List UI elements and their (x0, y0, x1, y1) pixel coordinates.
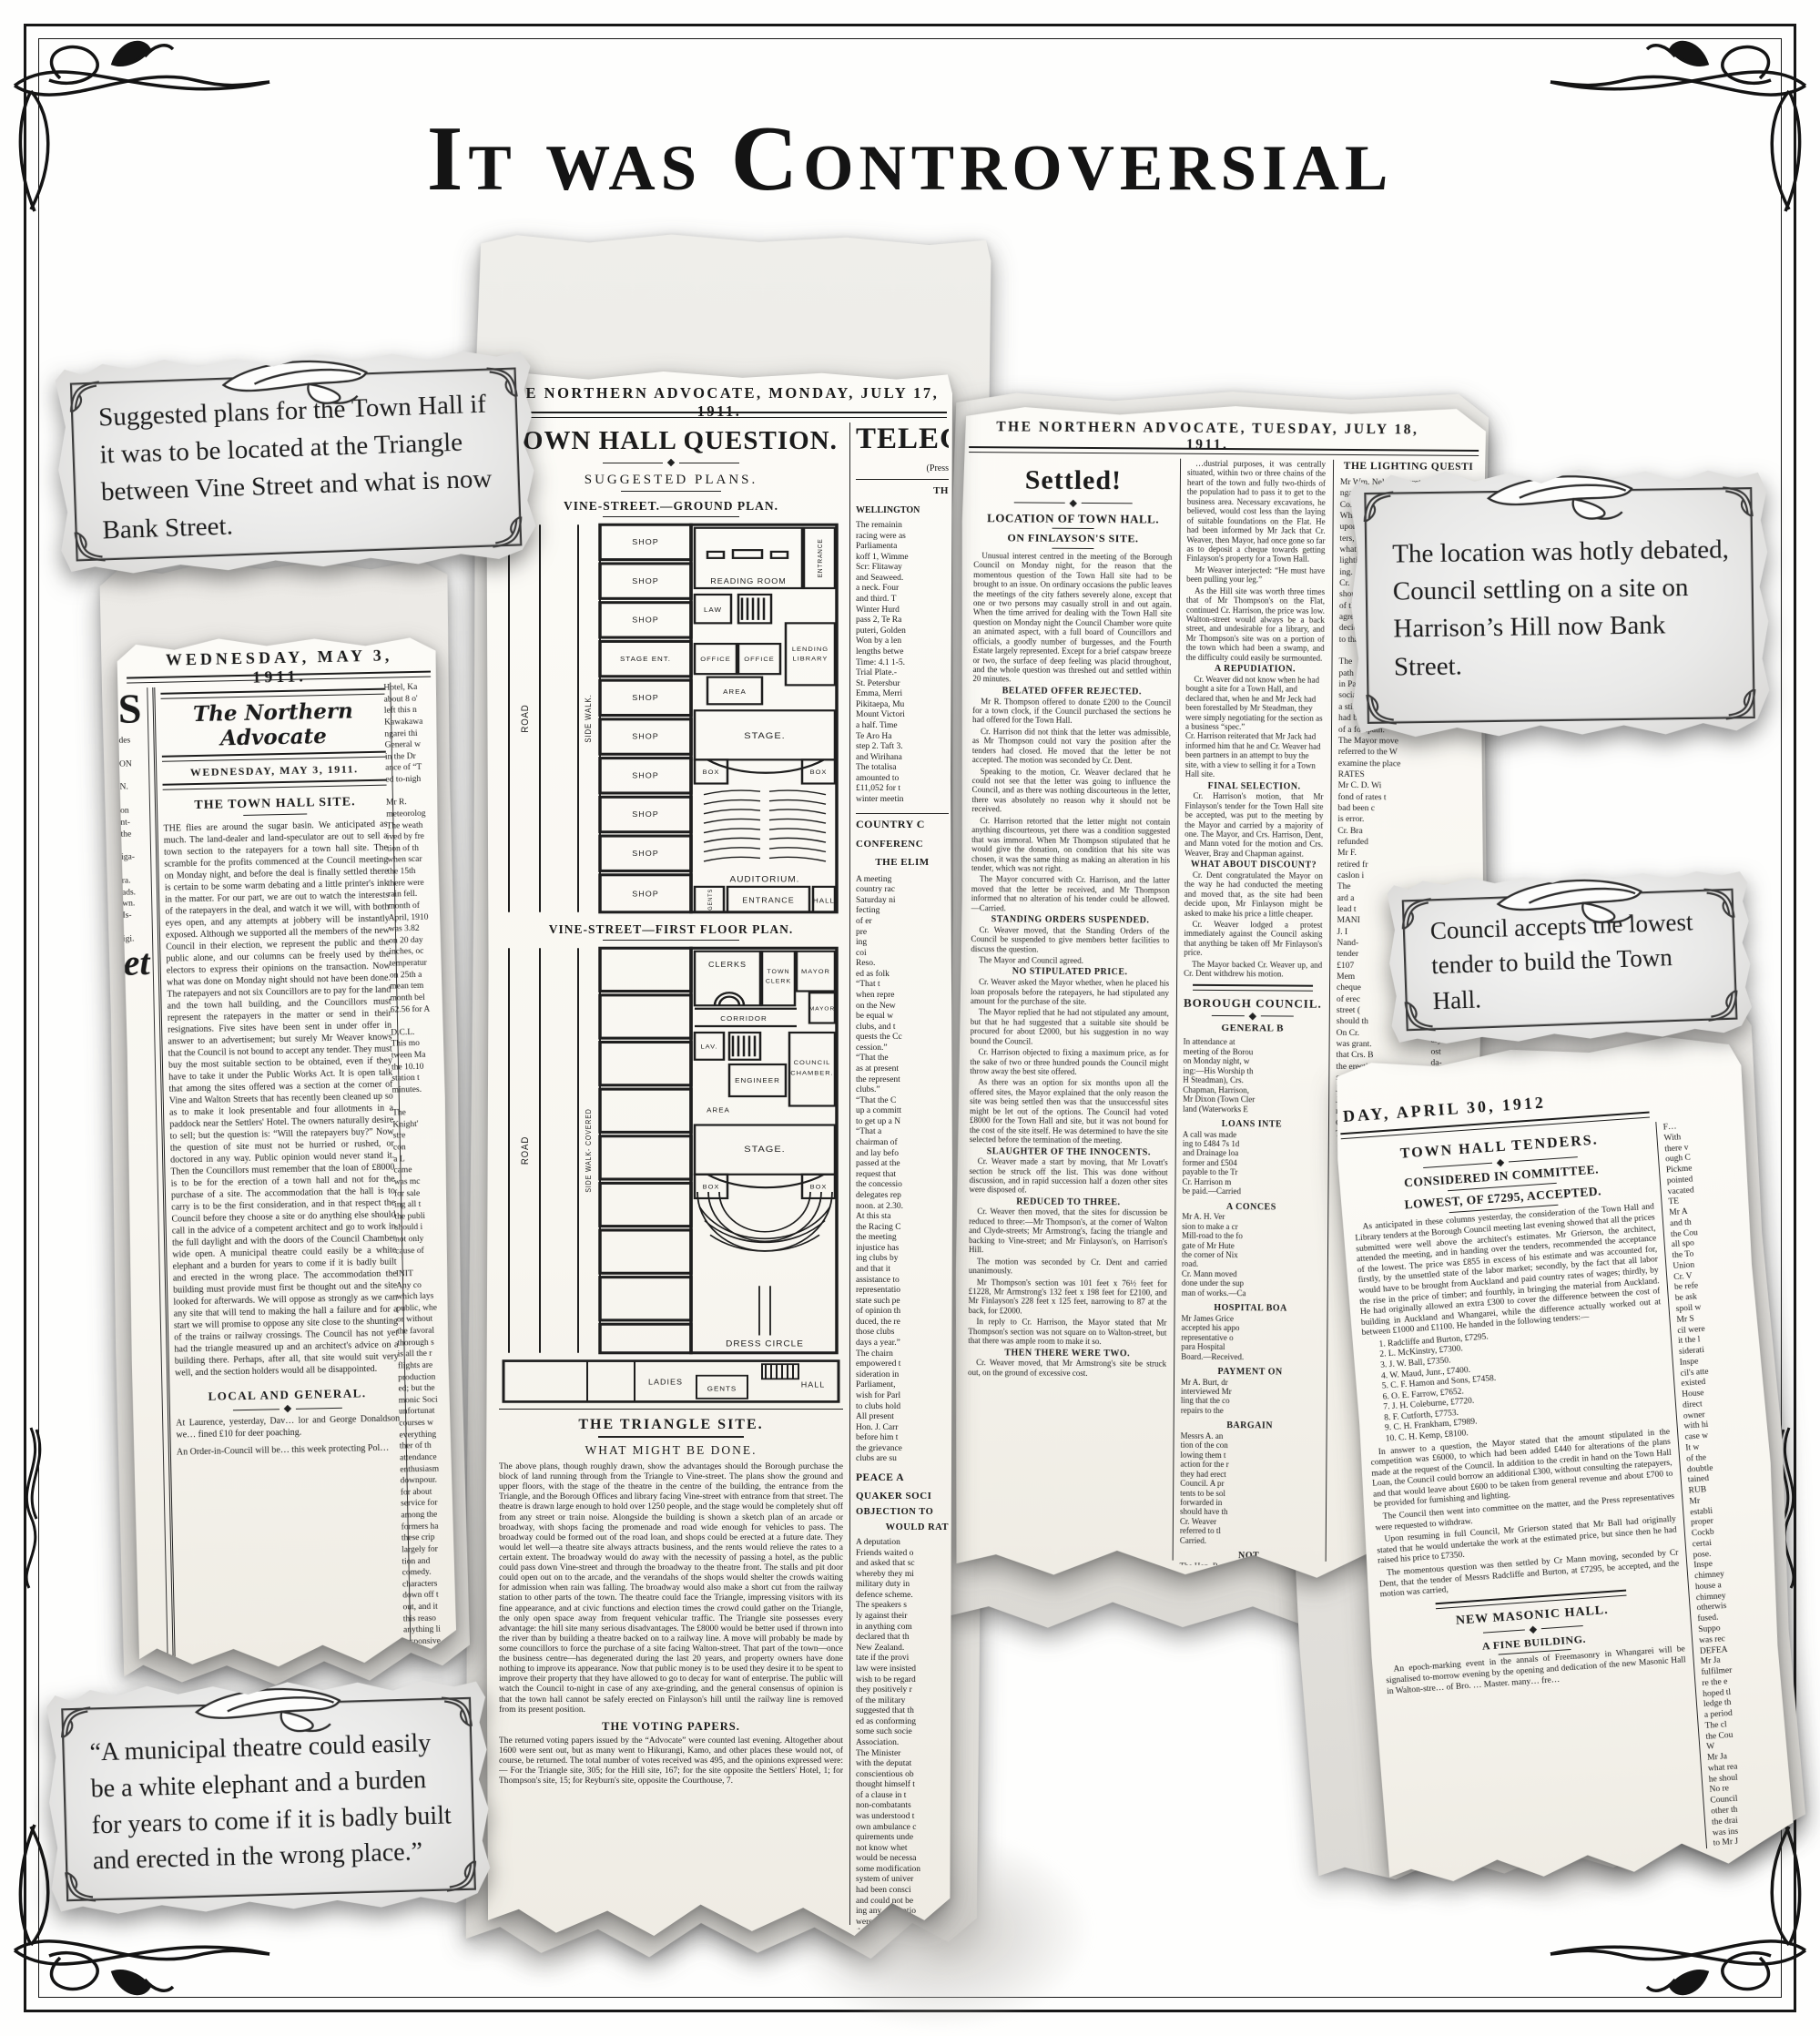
paragraph: Cr. Weaver moved, that the Standing Orde… (971, 925, 1169, 955)
section-heading: LOANS INTE (1183, 1119, 1321, 1131)
fragment: Mr James Grice accepted his appo represe… (1181, 1313, 1319, 1361)
news-item: An Order-in-Council will be… this week p… (177, 1441, 401, 1458)
article-subhead: ON FINLAYSON'S SITE. (973, 532, 1172, 545)
paragraph: Cr. Harrison did not think that the lett… (972, 727, 1171, 766)
paragraph: The Mayor replied that he had not stipul… (971, 1007, 1169, 1046)
paragraph: Cr. Harrison objected to fixing a maximu… (970, 1047, 1168, 1077)
room-label: CLERK (766, 979, 791, 985)
room-label: SHOP (632, 849, 658, 857)
column-heading: WOULD RAT (856, 1522, 949, 1532)
sidewalk-label: SIDE WALK. (583, 694, 593, 742)
column-heading: CONFERENC (856, 839, 949, 850)
section-heading: HOSPITAL BOA (1182, 1303, 1320, 1315)
cut-letter: et (123, 944, 153, 982)
paragraph: Cr. Weaver did not know when he had boug… (1185, 675, 1325, 780)
room-label: MAYOR (809, 1006, 835, 1013)
room-label: COUNCIL (794, 1060, 831, 1066)
room-label: LADIES (648, 1378, 683, 1386)
room-label: CHAMBER. (790, 1071, 834, 1077)
paragraph: Mr Thompson's section was 101 feet x 76½… (969, 1278, 1167, 1317)
room-label: HALL (813, 897, 835, 904)
room-label: LENDING (792, 646, 829, 653)
corner-curl-icon (1719, 484, 1756, 521)
diamond-ornament (1530, 1625, 1537, 1633)
road-label: ROAD (520, 704, 531, 732)
section-heading: BELATED OFFER REJECTED. (972, 686, 1171, 697)
article-body: THE flies are around the sugar basin. We… (163, 819, 399, 1379)
news-item: At Laurence, yesterday, Dav… lor and Geo… (176, 1412, 400, 1440)
room-label: GENTS (707, 889, 714, 911)
caption-box-location-debated: The location was hotly debated, Council … (1349, 467, 1770, 738)
paragraph: …dustrial purposes, it was centrally sit… (1186, 459, 1326, 565)
article-headline: THE TOWN HALL SITE. (163, 795, 387, 814)
room-label: AREA (723, 687, 747, 695)
room-label: LIBRARY (793, 657, 829, 663)
paragraph: Unusual interest centred in the meeting … (972, 551, 1172, 686)
paragraph: Cr. Weaver made a start by moving, that … (969, 1156, 1167, 1196)
caption-text: The location was hotly debated, Council … (1392, 532, 1733, 687)
press-credit: (Press (856, 463, 949, 473)
article-headline: Settled! (974, 464, 1173, 497)
paragraph: Cr. Harrison retorted that the letter mi… (971, 816, 1170, 874)
paragraph: In reply to Cr. Harrison, the Mayor stat… (968, 1317, 1166, 1347)
article-headline: TOWN HALL QUESTION. (499, 426, 843, 456)
column-heading: THE ELIM (856, 857, 949, 868)
swirl-ornament-icon (215, 351, 371, 409)
corner-curl-icon (1360, 488, 1398, 525)
sidewalk-label: SIDE WALK- COVERED (585, 1108, 594, 1192)
room-label: AUDITORIUM. (730, 875, 800, 883)
swirl-ornament-icon (188, 1679, 344, 1736)
caption-text: Suggested plans for the Town Hall if it … (97, 386, 499, 550)
section-heading: THE TRIANGLE SITE. (499, 1417, 843, 1433)
frontage-plan: LADIES GENTS HALL (500, 1358, 842, 1405)
diamond-ornament (1497, 1158, 1504, 1166)
paragraph: Speaking to the motion, Cr. Weaver decla… (971, 767, 1170, 816)
section-heading: LOCAL AND GENERAL. (175, 1385, 399, 1404)
section-heading: BOROUGH COUNCIL. (1184, 995, 1322, 1010)
room-label: SHOP (632, 890, 658, 898)
clipping-april-30-1912: DAY, APRIL 30, 1912 TOWN HALL TENDERS. C… (1330, 1032, 1799, 1888)
fragment: A call was made ing to £484 7s 1d and Dr… (1182, 1129, 1321, 1196)
first-floor-plan: ROAD SIDE WALK- COVERED (500, 943, 842, 1358)
tender-list: 1. Radcliffe and Burton, £7295. 2. L. Mc… (1362, 1320, 1669, 1447)
room-label: OFFICE (700, 657, 730, 664)
room-label: BOX (810, 769, 828, 776)
room-label: SHOP (632, 771, 658, 779)
deputation-fragment: A deputation Friends waited o and asked … (856, 1538, 949, 1929)
column-heading: QUAKER SOCI (856, 1491, 949, 1502)
room-label: SHOP (632, 732, 658, 740)
racing-results-fragment: The remainin racing were as Parliamenta … (856, 521, 949, 806)
section-heading: THE VOTING PAPERS. (499, 1720, 843, 1734)
plans-column: TOWN HALL QUESTION. SUGGESTED PLANS. VIN… (499, 422, 843, 1929)
column-headline: TELEG (856, 422, 949, 456)
clipping-may-3-1911: WEDNESDAY, MAY 3, 1911. S des ON N. on n… (117, 634, 457, 1669)
fragment: In attendance at meeting of the Borou on… (1183, 1037, 1322, 1115)
room-label: SHOP (632, 576, 658, 585)
paragraph: Cr. Weaver then moved, that the sites fo… (969, 1207, 1167, 1257)
paragraph: The motion was seconded by Cr. Dent and … (969, 1257, 1167, 1277)
paragraph: Cr. Dent congratulated the Mayor on the … (1185, 870, 1323, 919)
paragraph: As there was an option for six months up… (970, 1078, 1169, 1146)
room-label: ENTRANCE (818, 538, 824, 577)
room-label: ENTRANCE (742, 896, 794, 904)
room-label: READING ROOM (710, 576, 786, 585)
room-label: GENTS (707, 1385, 737, 1392)
room-label: CLERKS (708, 961, 747, 969)
article-subhead: SUGGESTED PLANS. (499, 473, 843, 488)
section-heading: WHAT ABOUT DISCOUNT? (1185, 860, 1323, 871)
diamond-ornament (284, 1405, 291, 1412)
fragment: Messrs A. an tion of the con lowing them… (1180, 1431, 1319, 1546)
swirl-ornament-icon (1480, 467, 1636, 522)
edge-curl-icon (13, 1420, 49, 1593)
caption-box-lowest-tender: Council accepts the lowest tender to bui… (1387, 868, 1753, 1046)
dateline-fragment: WELLINGTON (856, 505, 949, 515)
paragraph: Cr. Weaver asked the Mayor whether, when… (971, 977, 1169, 1007)
paragraph: As the Hill site was worth three times t… (1186, 585, 1326, 663)
newspaper-masthead: The Northern Advocate (161, 698, 386, 752)
diamond-ornament (667, 459, 675, 466)
caption-text: “A municipal theatre could easily be a w… (89, 1725, 453, 1879)
room-label: SHOP (632, 810, 658, 819)
room-label: BOX (703, 769, 720, 776)
telegraph-column: TELEG (Press TH WELLINGTON The remainin … (856, 422, 949, 1929)
article-subhead: LOCATION OF TOWN HALL. (974, 511, 1173, 526)
tenders-column: TOWN HALL TENDERS. CONSIDERED IN COMMITT… (1348, 1125, 1699, 1872)
caption-box-suggested-plans: Suggested plans for the Town Hall if it … (55, 347, 537, 576)
fragment: The Hon. R Mr Birks' rer but that the c … (1180, 1561, 1318, 1565)
paragraph: Cr. Weaver lodged a protest immediately … (1184, 920, 1322, 959)
room-label: MAYOR (801, 970, 830, 976)
room-label: SHOP (632, 538, 658, 546)
room-label: STAGE. (744, 1145, 785, 1155)
room-label: CORRIDOR (720, 1014, 767, 1022)
fragment: Mr A. Burt, dr interviewed Mr ling that … (1181, 1377, 1319, 1416)
plan-caption: VINE-STREET.—GROUND PLAN. (499, 499, 843, 514)
ground-floor-plan: ROAD SIDE WALK. SHOP SHOP SHOP STAGE ENT… (500, 520, 842, 917)
cut-text: des ON N. on nt- the iga- ra. ads. wn. I… (118, 735, 152, 945)
room-label: BOX (810, 1185, 828, 1191)
room-label: STAGE. (744, 731, 786, 740)
paragraph: As anticipated in these columns yesterda… (1354, 1203, 1662, 1339)
diamond-ornament (1069, 499, 1076, 506)
paragraph: Mr R. Thompson offered to donate £200 to… (972, 697, 1171, 727)
fragment: Mr A. H. Ver sion to make a cr Mill-road… (1182, 1212, 1321, 1298)
room-label: TOWN (767, 970, 789, 976)
article-body: The above plans, though roughly drawn, s… (499, 1462, 843, 1715)
paragraph: Cr. Weaver moved, that Mr Armstrong's si… (968, 1358, 1166, 1378)
article-body: The returned voting papers issued by the… (499, 1736, 843, 1787)
column-fragment: TH (856, 485, 949, 496)
corner-curl-icon (1722, 686, 1759, 723)
plan-caption: VINE-STREET—FIRST FLOOR PLAN. (499, 922, 843, 937)
room-label: ENGINEER (735, 1077, 780, 1084)
column-heading: OBJECTION TO (856, 1507, 949, 1517)
section-subheading: WHAT MIGHT BE DONE. (499, 1443, 843, 1458)
room-label: LAW (704, 606, 722, 614)
room-label: AREA (707, 1106, 730, 1114)
continuation-column: …dustrial purposes, it was centrally sit… (1180, 459, 1326, 1566)
diamond-ornament (1249, 1013, 1256, 1020)
cut-letter: S (117, 687, 147, 730)
editorial-column: The Northern Advocate WEDNESDAY, MAY 3, … (152, 682, 411, 1661)
caption-box-white-elephant-quote: “A municipal theatre could easily be a w… (46, 1676, 492, 1916)
room-label: DRESS CIRCLE (726, 1339, 804, 1348)
swirl-ornament-icon (1490, 870, 1646, 928)
paragraph: The Mayor concurred with Cr. Harrison, a… (971, 874, 1170, 913)
section-heading: GENERAL B (1184, 1022, 1322, 1034)
corner-curl-icon (1363, 690, 1400, 728)
room-label: SHOP (632, 616, 658, 624)
paragraph: Cr. Harrison's motion, that Mr Finlayson… (1185, 791, 1324, 859)
section-heading: A REPUDIATION. (1185, 664, 1324, 676)
paragraph: Mr Weaver interjected: “He must have bee… (1186, 565, 1325, 585)
section-heading: PAYMENT ON (1181, 1367, 1319, 1379)
column-heading: COUNTRY C (856, 818, 949, 831)
conference-fragment: A meeting country rac Saturday ni fectin… (856, 875, 949, 1465)
paragraph: The Mayor and Council agreed. (971, 955, 1169, 966)
room-label: BOX (703, 1185, 720, 1191)
room-label: SHOP (632, 694, 658, 702)
room-label: OFFICE (744, 657, 774, 664)
settled-column: Settled! LOCATION OF TOWN HALL. ON FINLA… (967, 457, 1173, 1564)
room-label: STAGE ENT. (620, 656, 671, 663)
paragraph: The Mayor backed Cr. Weaver up, and Cr. … (1184, 959, 1322, 979)
room-label: LAV. (701, 1044, 718, 1051)
page-title: It was Controversial (0, 106, 1820, 212)
column-heading: PEACE A (856, 1472, 949, 1483)
poster-page: It was Controversial WEDNESDAY, MAY 3, 1… (0, 0, 1820, 2036)
clipping-july-17-1911: THE NORTHERN ADVOCATE, MONDAY, JULY 17, … (486, 372, 952, 1936)
section-heading: A CONCES (1182, 1201, 1320, 1213)
room-label: HALL (801, 1380, 825, 1389)
edition-dateline: WEDNESDAY, MAY 3, 1911. (162, 762, 386, 780)
road-label: ROAD (520, 1136, 531, 1165)
section-heading: BARGAIN (1181, 1420, 1319, 1432)
section-heading: FINAL SELECTION. (1185, 780, 1324, 792)
